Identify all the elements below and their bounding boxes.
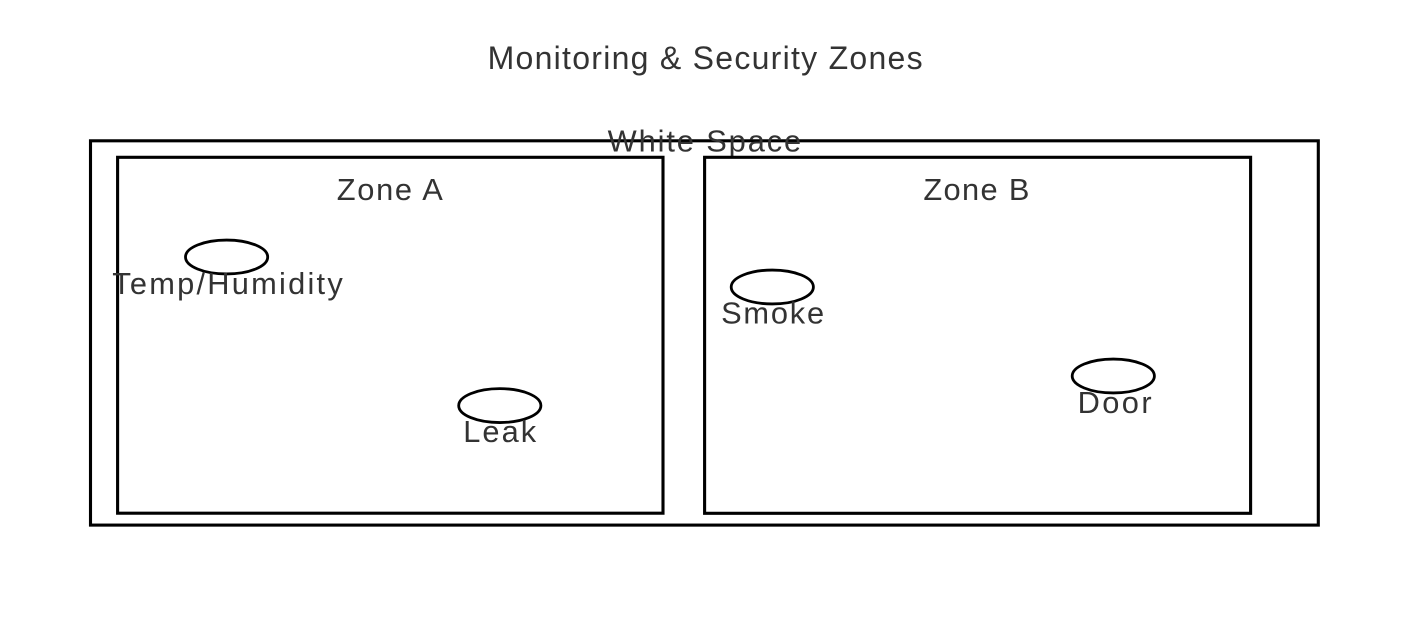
svg-text:Temp/Humidity: Temp/Humidity (112, 266, 343, 301)
svg-text:Door: Door (1078, 385, 1152, 420)
svg-text:Monitoring & Security Zones: Monitoring & Security Zones (488, 40, 923, 76)
svg-text:Smoke: Smoke (721, 296, 824, 331)
svg-text:Zone B: Zone B (923, 172, 1029, 207)
svg-text:Zone A: Zone A (337, 172, 443, 207)
